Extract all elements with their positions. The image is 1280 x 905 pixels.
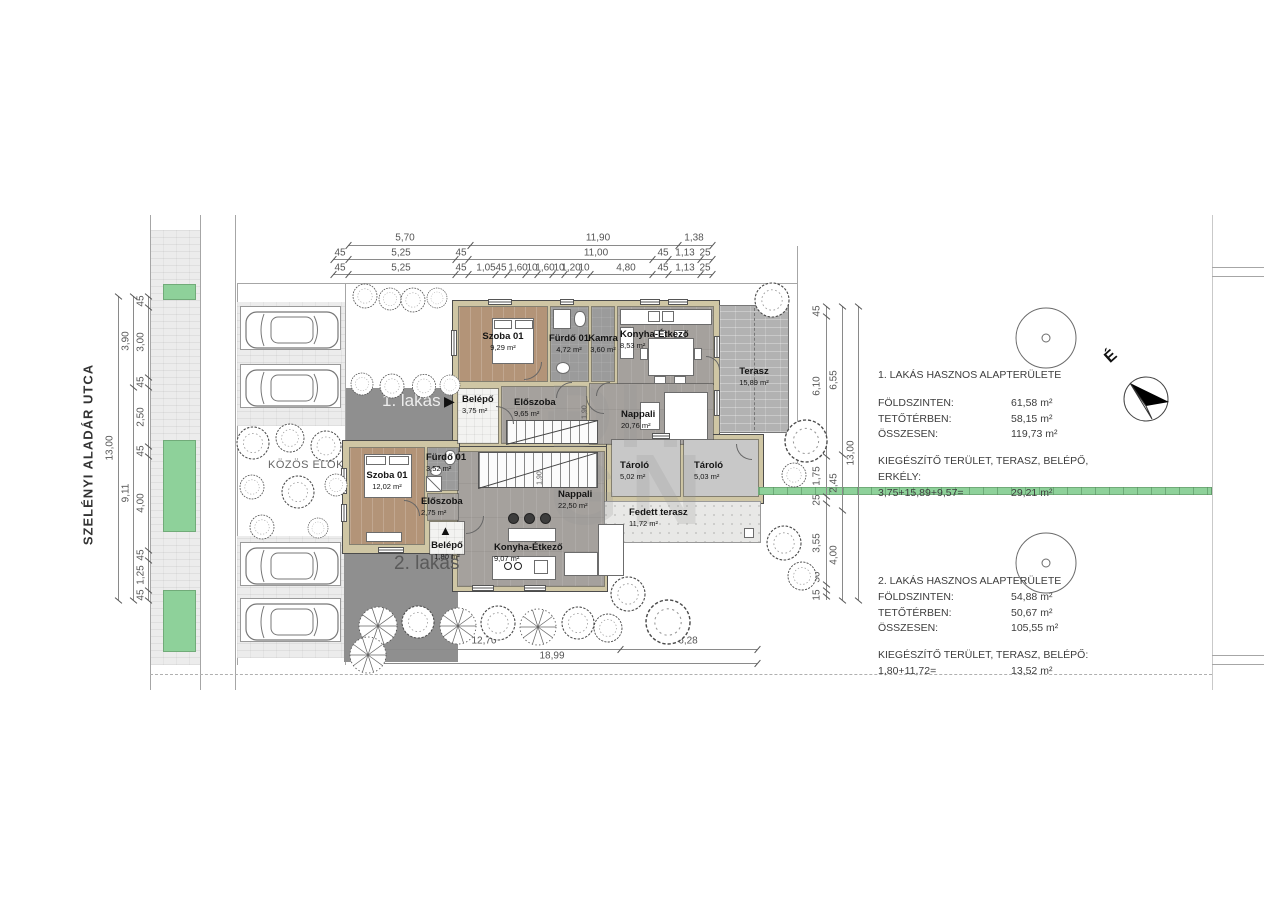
summary-row-label: TETŐTÉRBEN: — [878, 412, 1011, 428]
bush-icon — [412, 374, 435, 397]
bush-icon — [379, 288, 401, 310]
tree-icon — [350, 637, 386, 673]
bush-icon — [402, 606, 434, 638]
bush-icon — [250, 515, 274, 539]
bush-icon — [767, 526, 801, 560]
bush-icon — [240, 475, 264, 499]
bush-icon — [440, 375, 460, 395]
bush-icon — [311, 431, 341, 461]
summary-row-value: 61,58 m² — [1011, 396, 1052, 412]
bush-icon — [594, 614, 622, 642]
bush-icon — [562, 607, 594, 639]
summary-extra-value: 29,21 m² — [1011, 486, 1052, 502]
bush-icon — [282, 476, 314, 508]
summary-row-value: 119,73 m² — [1011, 427, 1058, 443]
tree-icon — [520, 609, 556, 645]
summary-row-value: 54,88 m² — [1011, 590, 1052, 606]
bush-icon — [427, 288, 447, 308]
car-icon — [246, 604, 338, 640]
tree-icon — [440, 608, 476, 644]
summary-row-label: ÖSSZESEN: — [878, 621, 1011, 637]
car-icon — [246, 548, 338, 584]
summary-row-label: TETŐTÉRBEN: — [878, 606, 1011, 622]
summary-row-label: FÖLDSZINTEN: — [878, 590, 1011, 606]
car-icon — [246, 312, 338, 348]
summary-row-value: 105,55 m² — [1011, 621, 1058, 637]
summary-extra-title: KIEGÉSZÍTŐ TERÜLET, TERASZ, BELÉPŐ, ERKÉ… — [878, 454, 1098, 486]
bush-icon — [351, 373, 373, 395]
north-arrow-icon — [1124, 377, 1169, 421]
summary-extra-calc: 3,75+15,89+9,57= — [878, 486, 1011, 502]
bush-icon — [788, 562, 816, 590]
summary-row-label: FÖLDSZINTEN: — [878, 396, 1011, 412]
car-icon — [246, 370, 338, 406]
site-plan-canvas: SZELÉNYI ALADÁR UTCA KÖZÖS ELŐKERT ĐH — [0, 0, 1280, 905]
bush-icon — [785, 420, 827, 462]
bush-icon — [276, 424, 304, 452]
bush-icon — [237, 427, 269, 459]
summary-row-label: ÖSSZESEN: — [878, 427, 1011, 443]
summary-row-value: 58,15 m² — [1011, 412, 1052, 428]
summary-extra-title: KIEGÉSZÍTŐ TERÜLET, TERASZ, BELÉPŐ: — [878, 648, 1098, 664]
bush-icon — [481, 606, 515, 640]
bush-icon — [353, 284, 377, 308]
tree-icon — [1016, 308, 1076, 368]
area-summary-2: 2. LAKÁS HASZNOS ALAPTERÜLETE FÖLDSZINTE… — [878, 574, 1098, 680]
summary-row-value: 50,67 m² — [1011, 606, 1052, 622]
bush-icon — [755, 283, 789, 317]
bush-icon — [380, 374, 404, 398]
bush-icon — [401, 288, 425, 312]
summary-extra-calc: 1,80+11,72= — [878, 664, 1011, 680]
bush-icon — [611, 577, 645, 611]
summary-title: 1. LAKÁS HASZNOS ALAPTERÜLETE — [878, 368, 1098, 384]
summary-extra-value: 13,52 m² — [1011, 664, 1052, 680]
area-summary-1: 1. LAKÁS HASZNOS ALAPTERÜLETE FÖLDSZINTE… — [878, 368, 1098, 501]
bush-icon — [782, 463, 806, 487]
bush-icon — [325, 474, 347, 496]
bush-icon — [646, 600, 690, 644]
summary-title: 2. LAKÁS HASZNOS ALAPTERÜLETE — [878, 574, 1098, 590]
bush-icon — [308, 518, 328, 538]
